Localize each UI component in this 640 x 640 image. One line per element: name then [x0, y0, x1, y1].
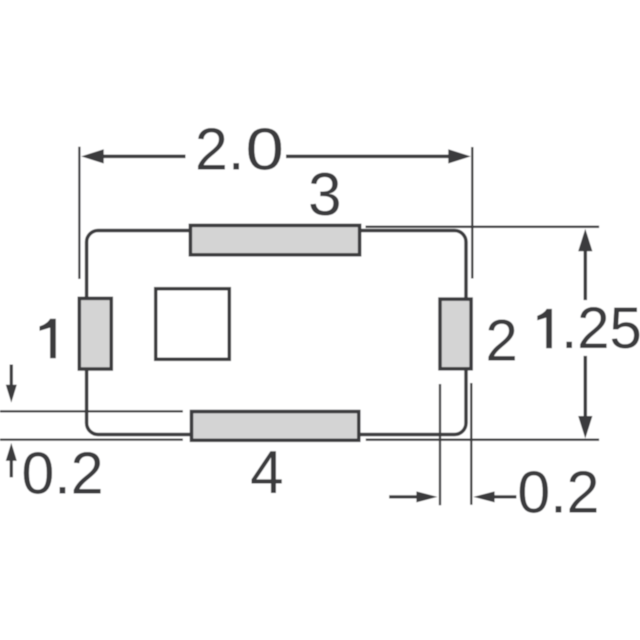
- svg-text:0.2: 0.2: [517, 460, 599, 526]
- svg-text:3: 3: [308, 161, 341, 228]
- svg-text:4: 4: [250, 439, 283, 506]
- svg-text:2: 2: [195, 116, 228, 182]
- svg-text:.25: .25: [561, 296, 640, 361]
- svg-text:.: .: [228, 116, 244, 182]
- svg-text:0.2: 0.2: [21, 440, 103, 506]
- svg-text:0: 0: [246, 116, 284, 182]
- svg-text:2: 2: [485, 308, 517, 373]
